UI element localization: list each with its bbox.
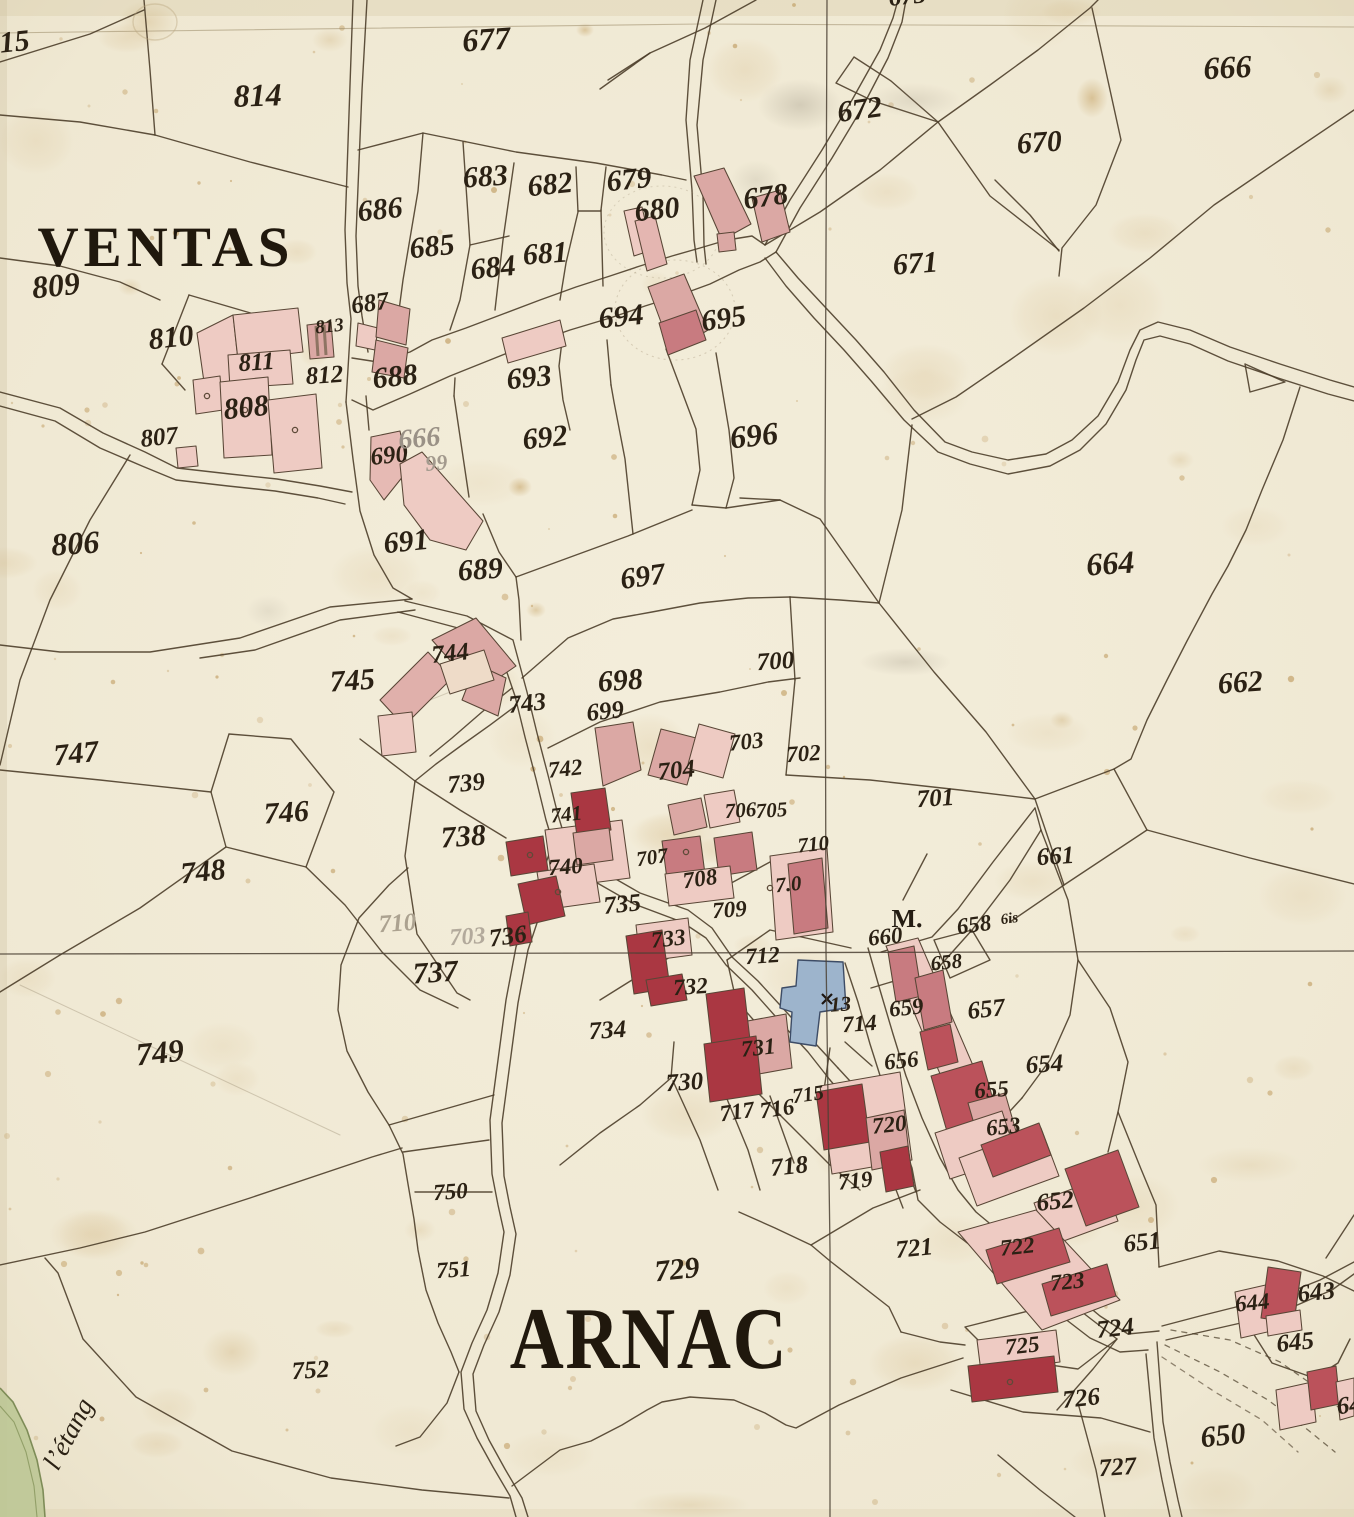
svg-text:810: 810 (147, 319, 195, 357)
svg-text:747: 747 (52, 735, 101, 773)
svg-text:694: 694 (597, 298, 645, 336)
svg-text:650: 650 (1199, 1417, 1247, 1455)
svg-text:736: 736 (488, 921, 529, 953)
svg-text:745: 745 (329, 662, 376, 698)
svg-text:712: 712 (744, 942, 780, 969)
svg-text:645: 645 (1275, 1327, 1315, 1358)
svg-text:697: 697 (618, 557, 668, 596)
svg-text:664: 664 (1085, 543, 1135, 582)
svg-text:643: 643 (1296, 1277, 1336, 1308)
svg-text:733: 733 (650, 924, 687, 952)
svg-text:681: 681 (522, 235, 569, 271)
svg-text:741: 741 (549, 800, 583, 827)
svg-text:719: 719 (837, 1166, 874, 1195)
svg-text:735: 735 (602, 889, 642, 920)
svg-text:699: 699 (585, 696, 626, 727)
svg-text:738: 738 (440, 818, 487, 854)
svg-text:714: 714 (841, 1010, 877, 1037)
svg-text:M.: M. (891, 904, 922, 933)
svg-text:652: 652 (1035, 1186, 1075, 1217)
svg-text:721: 721 (894, 1233, 934, 1264)
svg-text:725: 725 (1004, 1331, 1041, 1359)
svg-text:706: 706 (724, 797, 758, 823)
svg-text:700: 700 (756, 647, 796, 677)
svg-text:99: 99 (424, 449, 448, 476)
svg-text:749: 749 (134, 1032, 186, 1073)
svg-text:813: 813 (314, 315, 345, 339)
svg-text:742: 742 (547, 754, 584, 782)
svg-text:703: 703 (449, 923, 487, 951)
svg-text:709: 709 (711, 896, 748, 923)
svg-text:696: 696 (728, 415, 780, 456)
svg-text:701: 701 (916, 784, 955, 814)
svg-text:658: 658 (955, 910, 993, 940)
svg-text:670: 670 (1016, 124, 1063, 160)
svg-text:724: 724 (1095, 1313, 1135, 1344)
svg-text:812: 812 (305, 361, 344, 391)
svg-text:644: 644 (1234, 1288, 1271, 1316)
svg-text:730: 730 (665, 1068, 705, 1098)
svg-text:737: 737 (412, 954, 460, 990)
svg-text:806: 806 (50, 523, 100, 562)
svg-text:679: 679 (605, 161, 653, 199)
svg-text:691: 691 (382, 523, 430, 561)
svg-text:678: 678 (741, 177, 790, 216)
svg-text:698: 698 (597, 662, 644, 698)
svg-text:748: 748 (179, 853, 227, 891)
svg-text:703: 703 (728, 727, 765, 755)
svg-text:750: 750 (432, 1178, 469, 1205)
svg-text:686: 686 (356, 191, 404, 229)
svg-text:705: 705 (755, 797, 788, 823)
svg-text:723: 723 (1049, 1267, 1086, 1295)
svg-text:6is: 6is (1000, 910, 1020, 928)
svg-text:715: 715 (791, 1080, 826, 1108)
svg-text:658: 658 (929, 948, 963, 975)
svg-text:684: 684 (469, 249, 517, 287)
svg-text:683: 683 (462, 158, 509, 194)
svg-text:702: 702 (785, 740, 821, 767)
svg-text:7.0: 7.0 (774, 871, 803, 898)
svg-text:708: 708 (681, 864, 719, 894)
svg-text:739: 739 (446, 768, 487, 799)
svg-text:651: 651 (1122, 1227, 1162, 1258)
svg-text:743: 743 (507, 688, 547, 719)
svg-text:666: 666 (1203, 48, 1253, 86)
svg-text:732: 732 (672, 973, 708, 1000)
svg-text:722: 722 (999, 1232, 1036, 1260)
svg-text:695: 695 (699, 299, 748, 338)
svg-text:687: 687 (350, 287, 392, 319)
svg-text:746: 746 (263, 794, 310, 830)
svg-text:734: 734 (588, 1016, 627, 1046)
svg-text:672: 672 (835, 90, 884, 129)
svg-text:689: 689 (457, 551, 504, 587)
svg-text:685: 685 (408, 228, 456, 266)
svg-text:726: 726 (1061, 1383, 1102, 1414)
svg-text:740: 740 (547, 853, 584, 880)
svg-text:715: 715 (0, 24, 31, 62)
svg-text:656: 656 (883, 1046, 920, 1075)
svg-text:744: 744 (430, 638, 470, 669)
svg-text:814: 814 (233, 76, 282, 114)
svg-text:671: 671 (892, 245, 939, 281)
svg-text:707: 707 (635, 843, 671, 871)
svg-text:VENTAS: VENTAS (38, 216, 295, 279)
svg-text:718: 718 (769, 1151, 810, 1182)
svg-text:710: 710 (378, 909, 418, 939)
svg-text:653: 653 (985, 1112, 1022, 1140)
svg-text:661: 661 (1036, 842, 1075, 872)
svg-text:682: 682 (526, 166, 574, 204)
svg-text:752: 752 (291, 1356, 330, 1386)
svg-text:751: 751 (435, 1256, 471, 1283)
svg-text:710: 710 (796, 830, 830, 857)
svg-text:720: 720 (871, 1110, 908, 1139)
svg-text:717: 717 (718, 1097, 757, 1127)
svg-text:807: 807 (139, 422, 181, 453)
svg-text:680: 680 (633, 191, 681, 229)
svg-text:654: 654 (1025, 1050, 1064, 1080)
svg-text:692: 692 (521, 419, 569, 457)
svg-text:ARNAC: ARNAC (510, 1291, 789, 1388)
svg-text:808: 808 (222, 389, 270, 427)
svg-text:64: 64 (1335, 1391, 1354, 1420)
svg-text:657: 657 (966, 994, 1008, 1025)
svg-text:729: 729 (653, 1251, 701, 1289)
svg-text:704: 704 (656, 755, 696, 786)
svg-text:677: 677 (461, 19, 513, 58)
svg-text:688: 688 (371, 358, 419, 396)
svg-text:716: 716 (758, 1094, 796, 1124)
svg-text:727: 727 (1098, 1453, 1139, 1483)
svg-text:731: 731 (740, 1033, 777, 1061)
svg-text:811: 811 (238, 348, 276, 377)
svg-text:655: 655 (973, 1076, 1009, 1103)
svg-text:693: 693 (505, 359, 553, 397)
svg-text:659: 659 (888, 993, 925, 1022)
svg-text:662: 662 (1217, 664, 1264, 700)
